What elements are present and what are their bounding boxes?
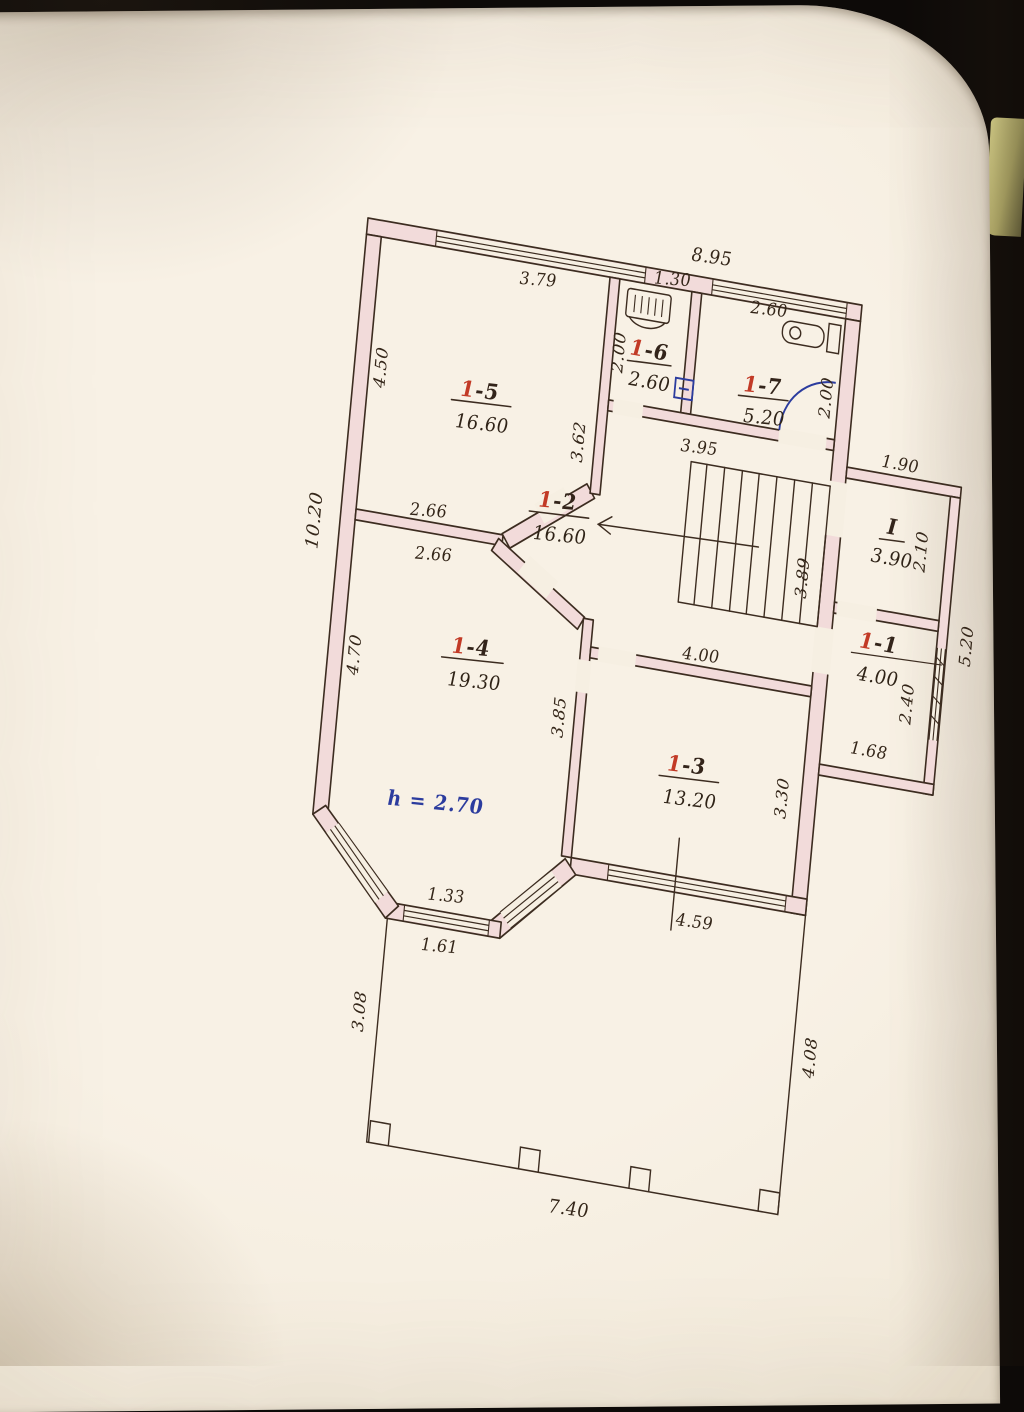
floor-plan: 1-5 16.60 1-6 2.60 1-7 5.20 1-2 16.60 I … xyxy=(0,0,1024,1366)
svg-text:3.79: 3.79 xyxy=(519,267,557,291)
svg-text:3.08: 3.08 xyxy=(348,989,371,1033)
svg-text:4.59: 4.59 xyxy=(674,908,713,934)
svg-text:1.90: 1.90 xyxy=(881,450,920,477)
svg-text:5.20: 5.20 xyxy=(955,624,978,668)
window-room13-bottom xyxy=(607,865,786,912)
svg-text:2.66: 2.66 xyxy=(414,542,452,566)
room-label-1-3: 1-3 13.20 xyxy=(656,746,721,817)
svg-text:5.20: 5.20 xyxy=(743,405,785,431)
photo-backdrop: { "colors": { "paper": "#f6efe2", "ink":… xyxy=(0,0,1024,1366)
svg-text:3.89: 3.89 xyxy=(791,556,814,600)
svg-text:16.60: 16.60 xyxy=(533,522,587,549)
svg-text:1-2: 1-2 xyxy=(538,486,577,516)
room-label-1-4: 1-4 19.30 xyxy=(439,627,506,700)
svg-text:1-3: 1-3 xyxy=(667,749,707,780)
svg-text:3.62: 3.62 xyxy=(567,420,590,464)
svg-text:4.08: 4.08 xyxy=(798,1036,821,1081)
window-bay-bottom xyxy=(403,905,489,936)
svg-text:7.40: 7.40 xyxy=(548,1195,590,1222)
toilet-icon xyxy=(625,288,672,332)
svg-text:1-7: 1-7 xyxy=(743,370,782,400)
room-label-1-6: 1-6 2.60 xyxy=(625,333,675,397)
svg-text:19.30: 19.30 xyxy=(447,668,501,695)
svg-text:16.60: 16.60 xyxy=(455,410,509,438)
svg-text:1.33: 1.33 xyxy=(427,883,465,908)
svg-text:3.90: 3.90 xyxy=(870,545,913,574)
svg-text:2.00: 2.00 xyxy=(814,376,837,421)
window-room11-right xyxy=(928,648,946,742)
water-heater-icon xyxy=(781,316,841,354)
svg-text:I: I xyxy=(885,513,899,541)
room-label-1-5: 1-5 16.60 xyxy=(448,371,513,441)
svg-text:1.68: 1.68 xyxy=(849,736,888,763)
svg-text:1.61: 1.61 xyxy=(421,933,459,958)
svg-text:3.95: 3.95 xyxy=(680,434,718,459)
ceiling-height-note: h = 2.70 xyxy=(387,785,484,820)
staircase xyxy=(678,462,830,627)
svg-text:4.00: 4.00 xyxy=(855,663,899,692)
svg-text:2.60: 2.60 xyxy=(627,368,671,397)
svg-text:2.40: 2.40 xyxy=(895,682,918,727)
svg-text:3.85: 3.85 xyxy=(547,695,570,739)
svg-text:2.60: 2.60 xyxy=(749,296,788,321)
exterior-walls xyxy=(305,218,862,991)
svg-text:4.70: 4.70 xyxy=(342,633,365,678)
svg-text:4.50: 4.50 xyxy=(369,345,392,390)
svg-text:1-4: 1-4 xyxy=(451,632,490,662)
svg-text:13.20: 13.20 xyxy=(662,786,716,814)
svg-text:8.95: 8.95 xyxy=(691,244,733,271)
room-label-1-7: 1-7 5.20 xyxy=(736,367,791,435)
window-bay-left xyxy=(320,821,393,905)
svg-text:2.00: 2.00 xyxy=(607,330,630,375)
svg-text:3.30: 3.30 xyxy=(770,776,793,820)
svg-text:2.10: 2.10 xyxy=(909,530,932,575)
svg-text:10.20: 10.20 xyxy=(302,490,327,550)
svg-text:2.66: 2.66 xyxy=(409,498,447,522)
svg-text:1.30: 1.30 xyxy=(654,267,692,291)
room-label-1-1: 1-1 4.00 xyxy=(855,626,903,692)
